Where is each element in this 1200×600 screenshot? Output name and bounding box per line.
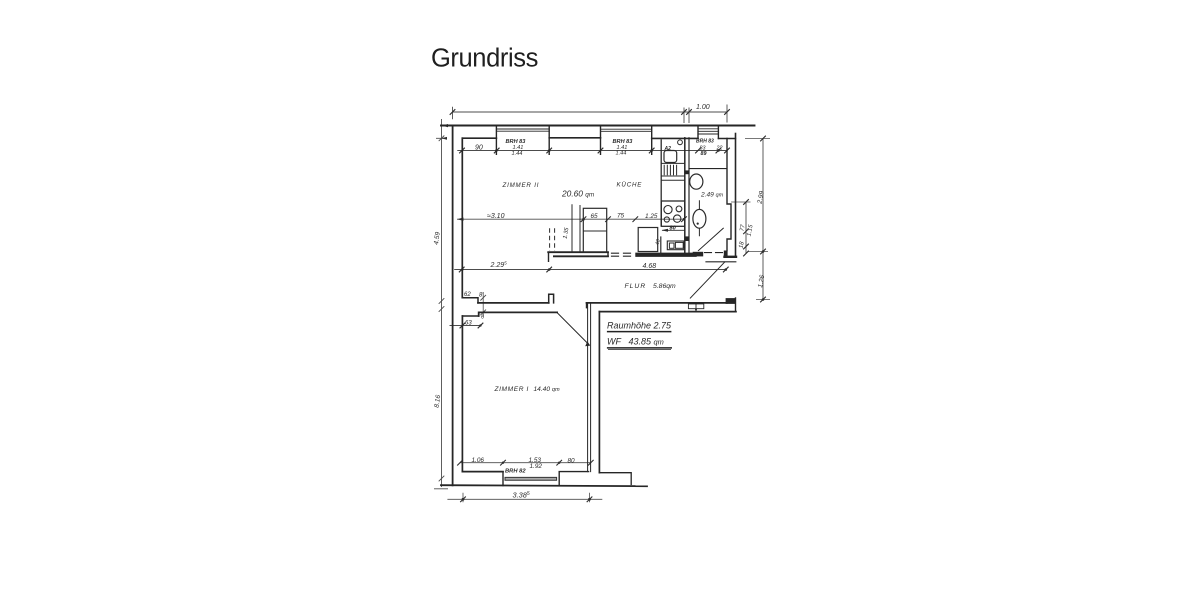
svg-text:KÜCHE: KÜCHE [617,182,643,189]
svg-text:22: 22 [716,145,723,151]
svg-text:6: 6 [481,315,484,321]
svg-text:89: 89 [701,151,707,157]
svg-text:75: 75 [617,212,625,219]
svg-text:90: 90 [475,145,483,152]
svg-text:1.06: 1.06 [472,457,485,464]
svg-text:80: 80 [568,458,576,465]
svg-text:18: 18 [739,241,746,249]
svg-text:BRH 82: BRH 82 [505,468,526,474]
svg-text:ZIMMER I: ZIMMER I [494,386,529,393]
svg-text:1.35: 1.35 [563,226,571,239]
svg-text:2.295: 2.295 [490,261,508,269]
svg-text:ZIMMER II: ZIMMER II [502,182,540,189]
svg-text:14.40 qm: 14.40 qm [534,386,560,393]
svg-text:BRH 83: BRH 83 [696,139,714,145]
svg-text:≈3.10: ≈3.10 [487,213,505,220]
svg-text:20.60 qm: 20.60 qm [561,189,595,199]
svg-text:5.86qm: 5.86qm [653,283,676,290]
svg-text:1.44: 1.44 [512,151,523,157]
svg-text:4.59: 4.59 [433,231,442,245]
svg-text:65: 65 [591,213,599,220]
svg-text:1.44: 1.44 [616,151,627,157]
svg-text:FLUR: FLUR [625,283,647,290]
svg-text:80: 80 [670,226,677,232]
svg-text:Raumhöhe 2.75: Raumhöhe 2.75 [607,321,672,331]
svg-text:8: 8 [479,292,483,298]
svg-text:WF 43.85 qm: WF 43.85 qm [607,337,664,347]
svg-text:8.16: 8.16 [434,394,443,408]
svg-text:63: 63 [465,320,472,326]
svg-text:4.68: 4.68 [643,263,657,270]
svg-text:1.26: 1.26 [757,274,766,288]
svg-text:1.15: 1.15 [747,224,755,237]
svg-text:3.385: 3.385 [513,491,530,500]
svg-text:1.25: 1.25 [645,213,658,220]
svg-text:2.49 qm: 2.49 qm [700,192,724,199]
svg-text:Grundriss: Grundriss [431,45,538,73]
svg-text:1.92: 1.92 [530,463,543,470]
svg-text:2.99: 2.99 [756,190,765,205]
svg-text:1.00: 1.00 [696,104,710,111]
